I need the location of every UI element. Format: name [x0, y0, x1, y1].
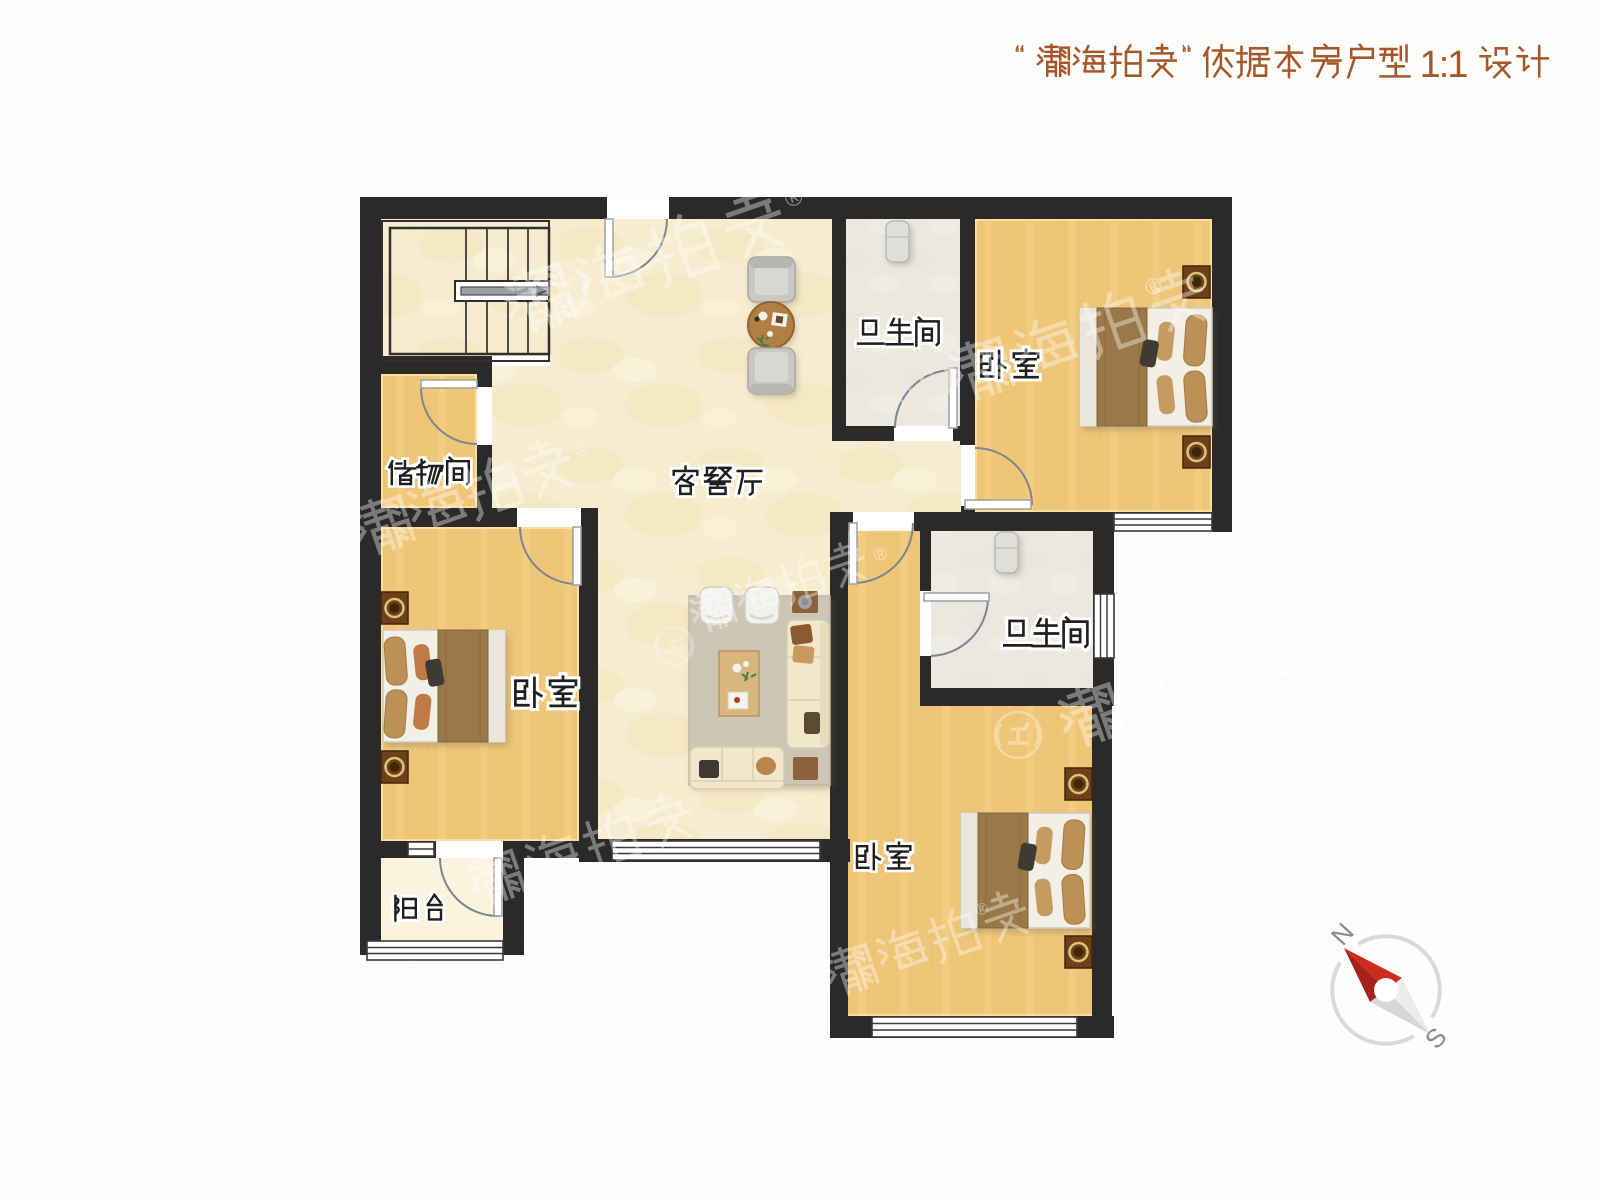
svg-text:1:1: 1:1 — [1420, 44, 1468, 86]
